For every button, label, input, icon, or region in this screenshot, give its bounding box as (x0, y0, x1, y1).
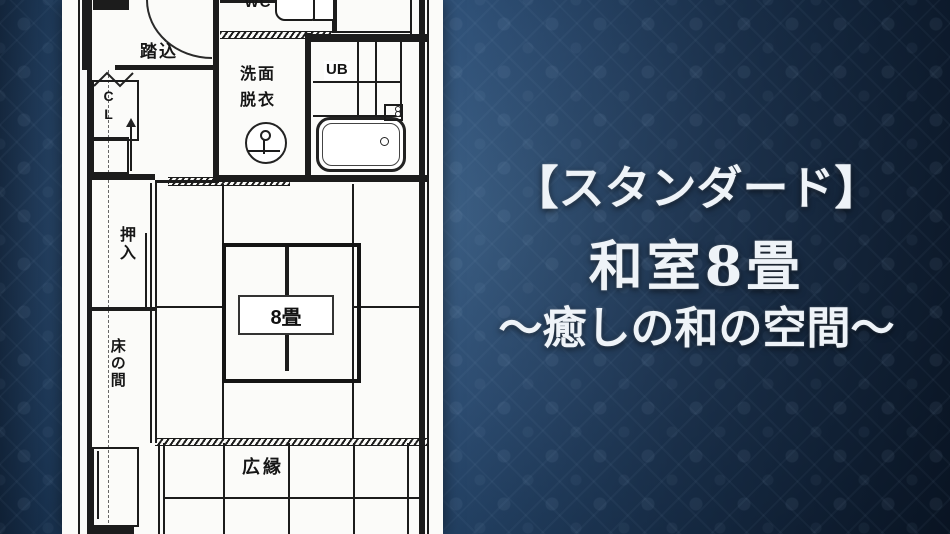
wall-line (353, 443, 355, 534)
wall-line (150, 183, 152, 443)
bathtub-icon (322, 123, 400, 166)
closet-box (92, 137, 129, 174)
wall-line (155, 183, 157, 443)
hatch-band (155, 438, 428, 446)
wall-line (213, 0, 219, 183)
caption-line-2: 和室8畳 (443, 222, 950, 301)
tokonoma-label: 床の間 (107, 338, 126, 389)
wall-line (375, 42, 377, 117)
tatami-size-box: 8畳 (238, 295, 334, 335)
wall-line (145, 233, 147, 310)
wall-line (357, 42, 359, 117)
wc-label: WC (236, 0, 280, 13)
shoe-cabinet (93, 0, 129, 10)
caption-line-1: 【スタンダード】 (443, 152, 950, 218)
unit-bath-label: UB (324, 61, 350, 80)
wall-line (305, 34, 428, 42)
tatami-size-label: 8畳 (270, 301, 301, 330)
wall-line (155, 306, 222, 308)
bathtub-icon (316, 117, 406, 172)
caption-line-3: ～癒しの和の空間～ (443, 292, 950, 356)
wall-line (407, 443, 409, 534)
wall-line (223, 443, 225, 534)
storage-base-band (92, 527, 134, 534)
sink-icon (260, 130, 271, 141)
wall-line (410, 0, 412, 34)
wall-line (158, 443, 160, 534)
washroom-label: 洗面 (240, 66, 276, 83)
washroom-label: 脱衣 (240, 92, 276, 109)
toilet-tank-icon (313, 0, 335, 21)
storage-box (97, 451, 99, 519)
wall-line (163, 443, 165, 534)
wall-line (419, 0, 425, 534)
hero-banner: WC 踏込 洗面脱衣 UB CL 押入 床の間 8畳 広縁 【スタンダード】 和… (0, 0, 950, 534)
wall-line (337, 31, 410, 33)
toilet-icon (275, 0, 315, 21)
washroom-label: 洗面脱衣 (240, 62, 276, 113)
wall-line (90, 174, 155, 180)
closet-label: CL (99, 88, 117, 124)
wall-line (78, 0, 80, 534)
wall-line (155, 180, 213, 183)
wall-line (305, 33, 311, 180)
veranda-label: 広縁 (239, 456, 287, 479)
entrance-label: 踏込 (140, 41, 178, 62)
wall-line (427, 0, 429, 534)
shower-tap-icon (395, 111, 401, 117)
closet-rod-arrow-icon (126, 118, 136, 127)
oshiire-label: 押入 (115, 226, 135, 262)
wall-line (163, 497, 419, 499)
wall-line (288, 443, 290, 534)
sink-icon (245, 122, 287, 164)
closet-rod-arrow-icon (130, 127, 132, 171)
wall-line (352, 306, 419, 308)
wall-line (213, 175, 428, 182)
floor-plan: WC 踏込 洗面脱衣 UB CL 押入 床の間 8畳 広縁 (62, 0, 443, 534)
storage-box (92, 447, 139, 527)
caption: 【スタンダード】 和室8畳 ～癒しの和の空間～ (443, 0, 950, 534)
bathtub-drain-icon (380, 137, 389, 146)
